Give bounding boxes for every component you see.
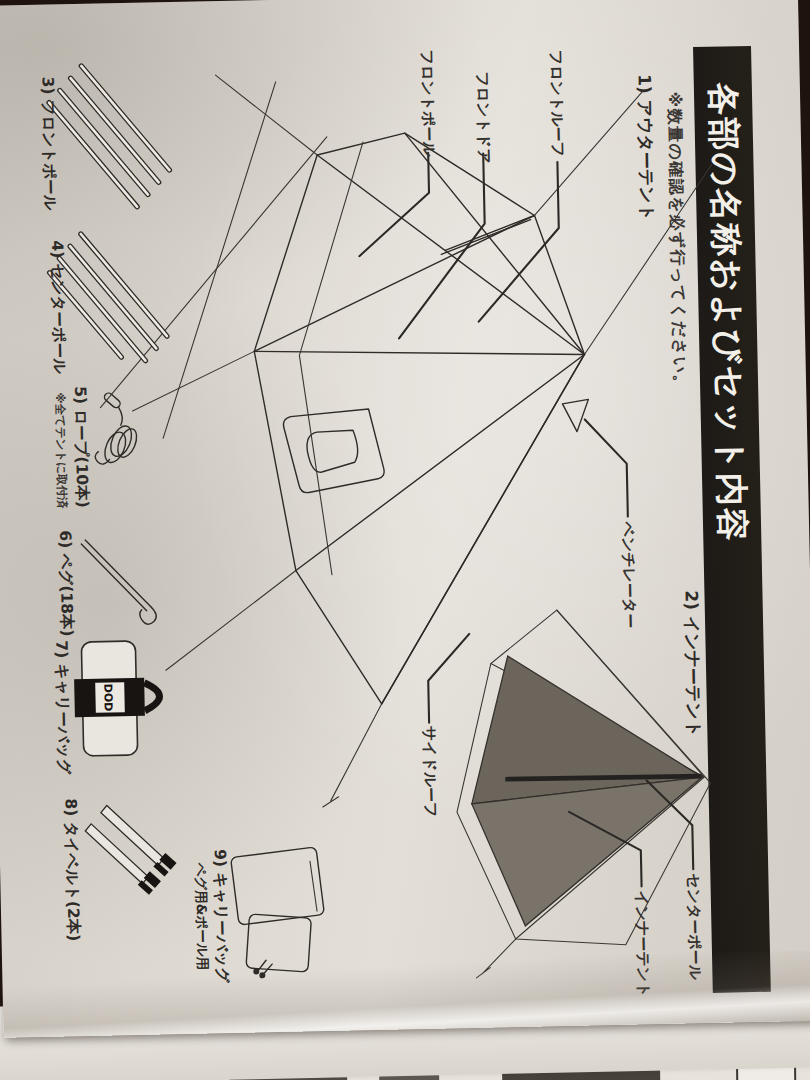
item-6-label: 6) ペグ(18本)	[54, 530, 77, 637]
inner-tent-face-right	[471, 777, 705, 927]
leader-front-pole	[357, 153, 430, 256]
guy-line	[581, 165, 716, 355]
door-opening	[307, 430, 358, 472]
item-4-label: 4) センターポール	[46, 240, 70, 374]
label-front-door: フロントドア	[472, 71, 493, 163]
item-5-note: ※全てテントに取付済	[52, 392, 69, 508]
item-7-label: 7) キャリーバッグ	[50, 640, 74, 774]
front-pole-icon	[48, 64, 170, 208]
bag-handle	[144, 682, 160, 710]
side-roof-edge	[374, 354, 591, 703]
label-front-pole: フロントポール	[417, 50, 438, 157]
guy-line	[476, 939, 517, 978]
tie-belt-icon	[85, 804, 177, 896]
bag-logo-text: DOD	[101, 684, 115, 712]
label-ventilator: ベンチレーター	[618, 521, 639, 628]
tent-diagram-svg: DOD	[26, 5, 810, 1013]
leader-ventilator	[585, 419, 628, 518]
label-side-roof: サイドルーフ	[419, 726, 440, 818]
outer-tent-drawing	[94, 65, 725, 812]
guy-line	[321, 704, 384, 807]
awning-seam	[252, 215, 538, 351]
carry-bag-icon: DOD	[73, 640, 160, 756]
item-3-label: 3) フロントポール	[36, 76, 60, 210]
tent-seam	[254, 344, 584, 361]
manual-page-content: 各部の名称およびセット内容 ※数量の確認を必ず行ってください。 1) アウターテ…	[26, 5, 810, 1013]
door-panel	[283, 409, 384, 493]
tent-seam	[291, 354, 588, 570]
vent-flap	[562, 399, 589, 432]
guy-line	[215, 73, 317, 157]
item-5-label: 5) ロープ(10本)	[69, 386, 93, 508]
tent-body-outline	[250, 130, 592, 707]
item-8-label: 8) タイベルト(2本)	[60, 798, 84, 941]
guy-line	[164, 571, 298, 671]
inner-tent-drawing	[453, 607, 715, 978]
item-9-label: 9) キャリーバッグ	[209, 849, 233, 983]
guy-line	[131, 351, 255, 411]
photo-of-manual: 各部の名称およびセット内容 ※数量の確認を必ず行ってください。 1) アウターテ…	[0, 0, 810, 1080]
guy-line	[156, 82, 283, 438]
leader-side-roof	[427, 634, 471, 723]
peg-icon	[81, 539, 156, 626]
rope-icon	[94, 391, 141, 466]
label-center-pole: センターポール	[683, 873, 704, 980]
label-front-roof: フロントルーフ	[546, 50, 567, 157]
tent-diagram: DOD	[26, 5, 810, 1013]
small-bags-icon	[230, 847, 325, 979]
tent-seam	[317, 150, 584, 360]
hem-seam	[295, 142, 372, 575]
label-inner-tent: インナーテント	[632, 890, 653, 997]
manual-sheet: 各部の名称およびセット内容 ※数量の確認を必ず行ってください。 1) アウターテ…	[0, 0, 810, 1038]
item-9-sublabel: ペグ用&ポール用	[191, 862, 211, 970]
